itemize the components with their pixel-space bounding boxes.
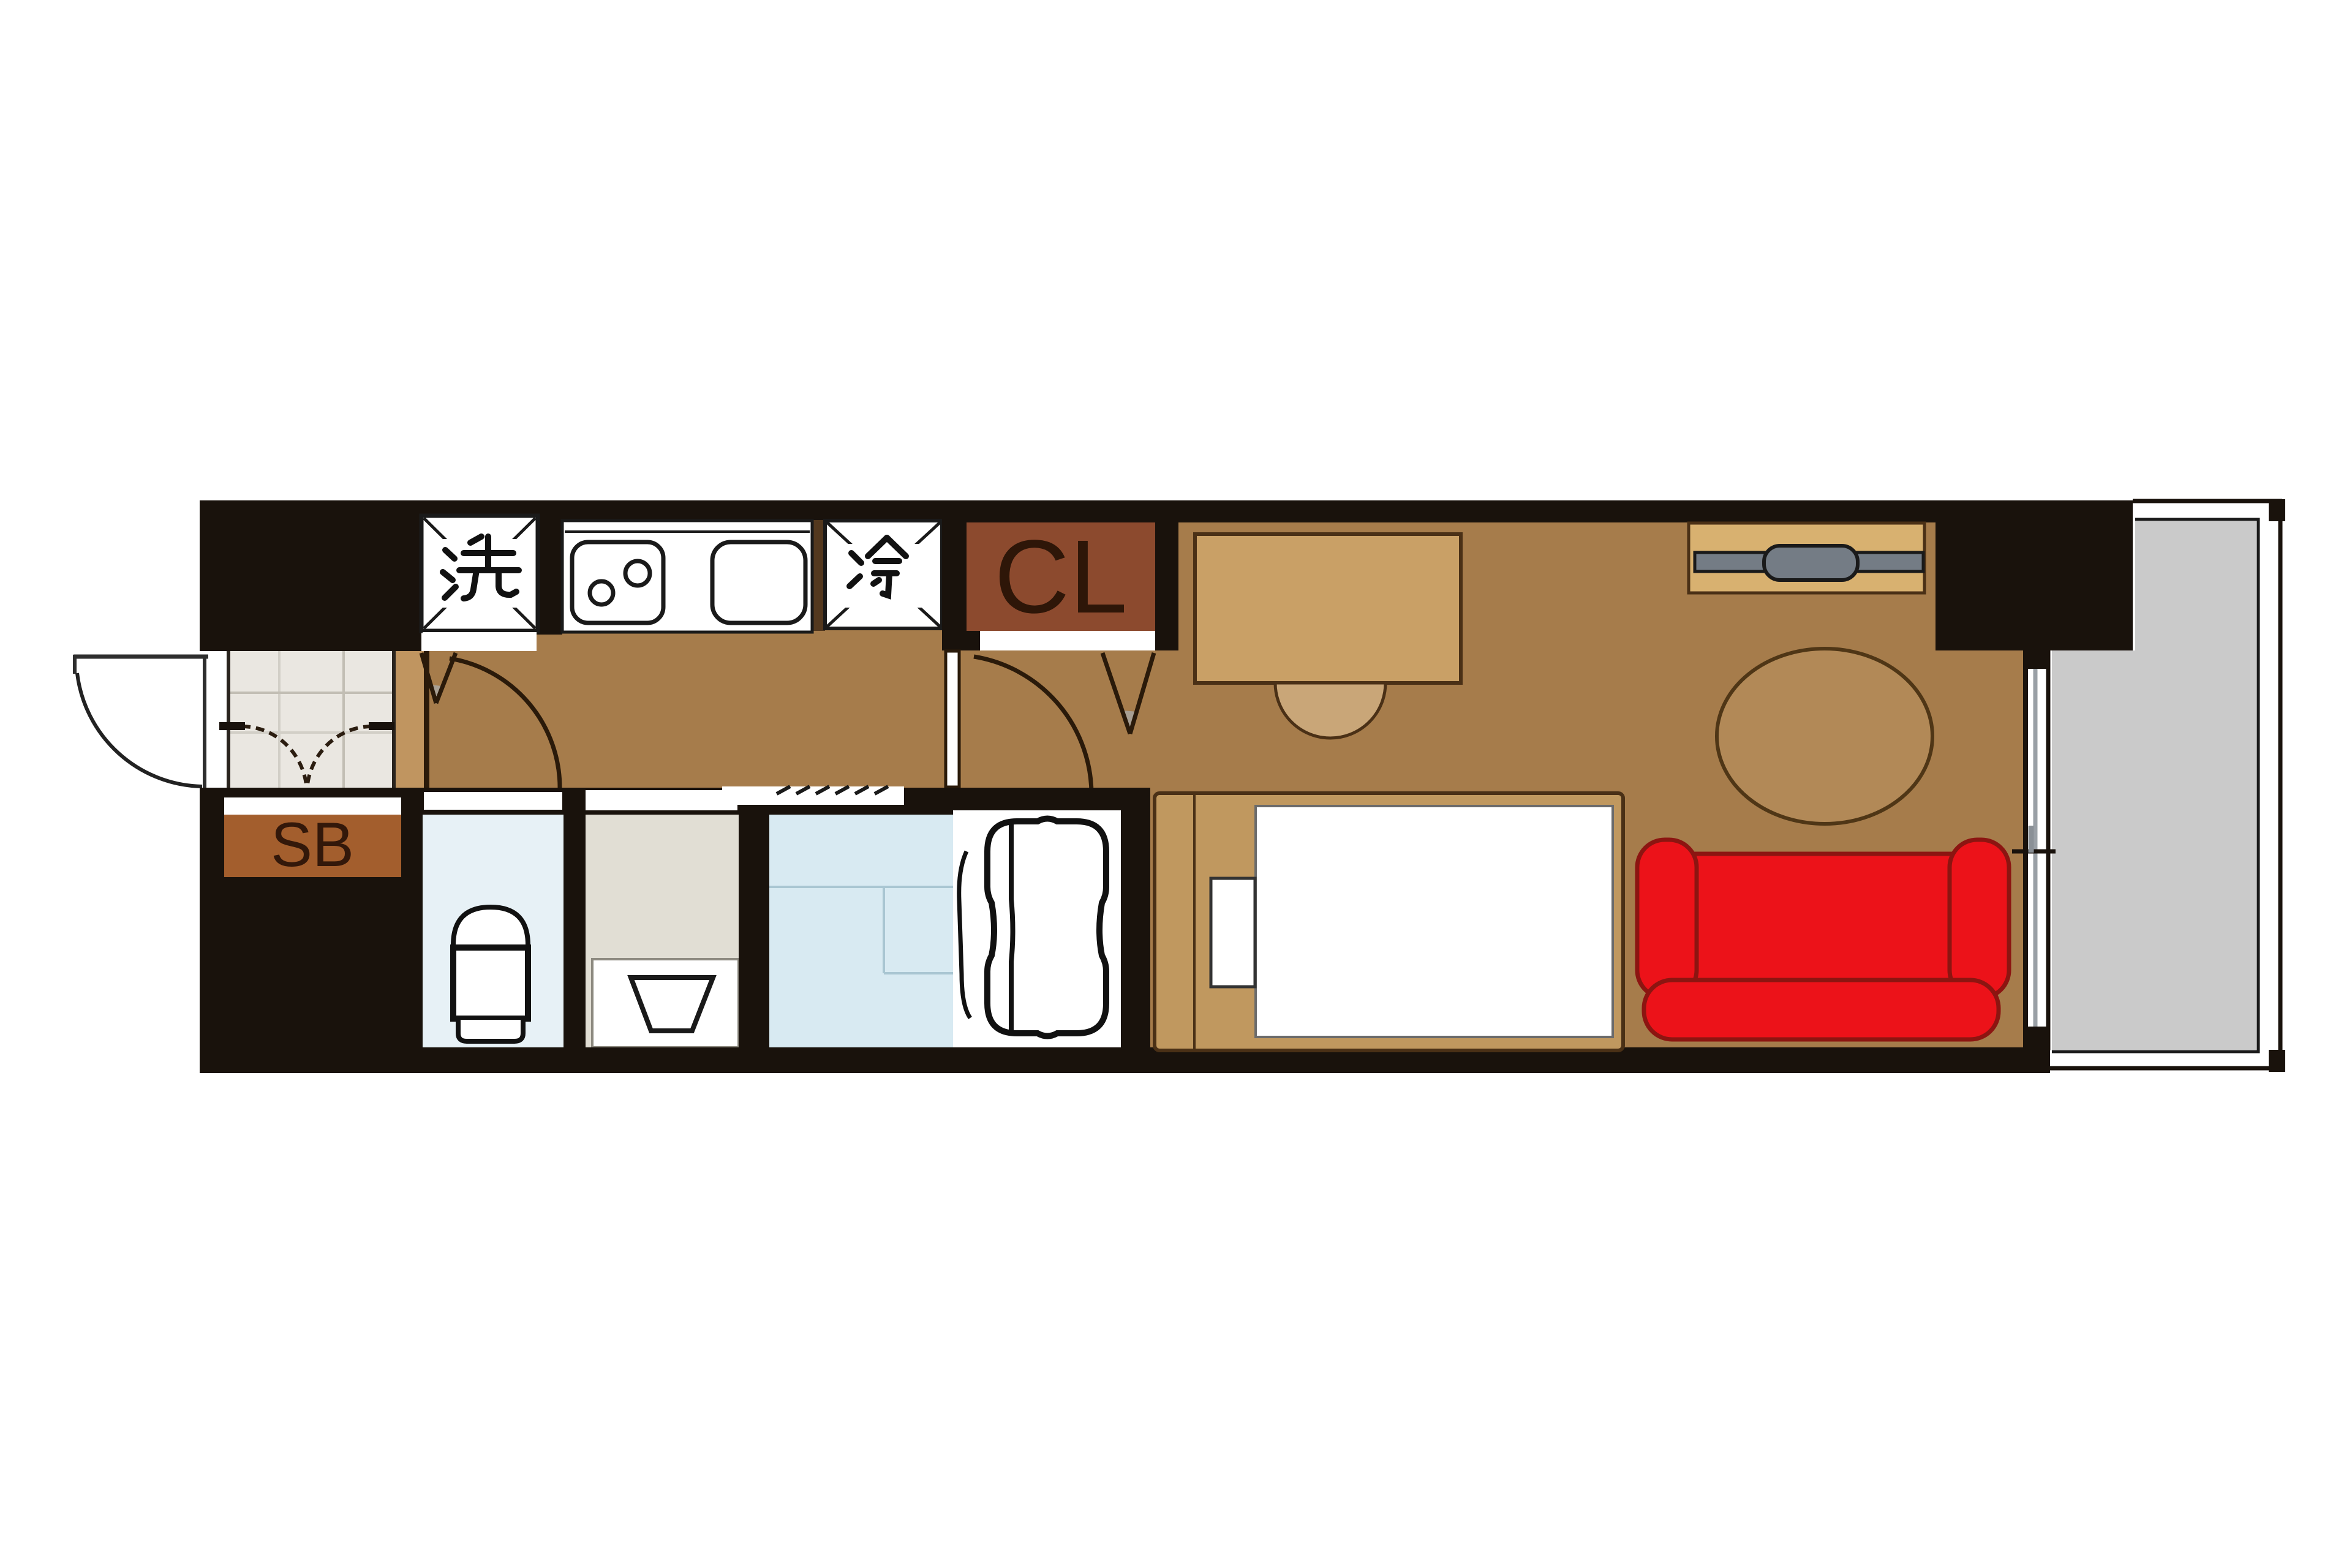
svg-text:SB: SB [271,810,354,880]
svg-text:CL: CL [994,519,1127,635]
